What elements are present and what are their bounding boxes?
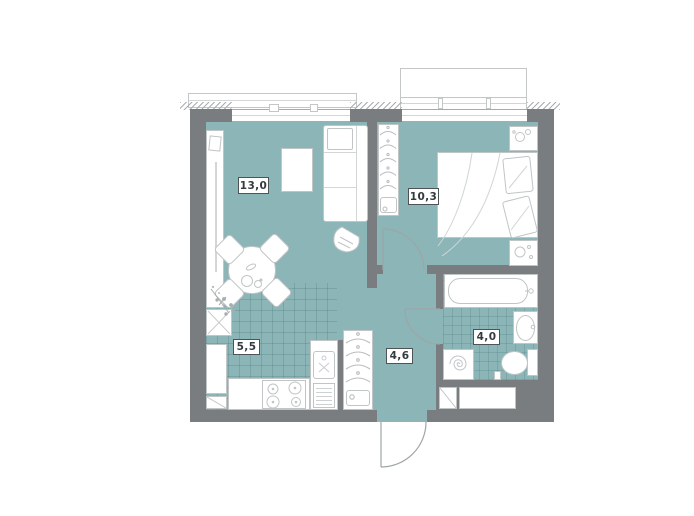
tv-frame	[208, 135, 222, 151]
window-frame-tick	[310, 104, 318, 112]
outer-wall-top	[527, 109, 554, 122]
balcony	[400, 68, 527, 98]
closet-drawer	[380, 197, 397, 213]
window-sill-line	[189, 100, 356, 101]
washbasin-bowl	[516, 315, 535, 341]
hob-unit	[206, 309, 232, 336]
hallway-area-value: 4,6	[390, 350, 410, 362]
sofa-cushion-line	[324, 187, 357, 188]
nightstand	[509, 126, 538, 151]
entrance-door	[381, 422, 426, 467]
outer-wall-bottom	[427, 410, 436, 422]
tv-line	[215, 162, 217, 272]
outer-wall-bottom	[190, 410, 377, 422]
sofa-backrest-line	[356, 126, 357, 221]
window-frame-tick	[269, 104, 279, 112]
room-label-bedroom: 10,3	[408, 188, 439, 205]
balcony-rail-tick	[438, 98, 443, 109]
toilet-tank	[527, 349, 538, 376]
nightstand	[509, 240, 538, 266]
kitchen-area-value: 5,5	[237, 341, 257, 353]
living-area-value: 13,0	[240, 180, 268, 192]
room-label-kitchen: 5,5	[233, 339, 260, 355]
washing-machine	[443, 349, 474, 380]
room-label-bathroom: 4,0	[473, 329, 500, 345]
vent-shaft	[439, 387, 457, 409]
wall-living-bedroom	[367, 122, 377, 288]
wall-hallway-bathroom	[436, 344, 443, 382]
refrigerator	[206, 344, 227, 394]
outer-wall-right	[538, 109, 554, 422]
kitchen-sink	[313, 351, 335, 379]
bedroom-area-value: 10,3	[410, 191, 438, 203]
wall-bedroom-hallway	[367, 265, 383, 274]
wall-bedroom-bathroom	[427, 265, 538, 274]
room-label-hallway: 4,6	[386, 348, 413, 364]
pillow	[502, 156, 534, 195]
coffee-table	[281, 148, 313, 192]
sofa-cushion	[327, 128, 353, 150]
toilet-bowl	[501, 351, 528, 375]
corner-cabinet	[206, 396, 227, 409]
wall-hallway-bathroom	[436, 273, 443, 309]
wardrobe-shoe-box	[346, 390, 370, 406]
drainboard	[313, 383, 335, 408]
balcony-rail-line	[401, 103, 526, 104]
bathroom-area-value: 4,0	[477, 331, 497, 343]
vent-shaft	[459, 387, 516, 409]
window-living-mid	[232, 115, 350, 116]
floor-plan: 13,0 10,3 5,5 4,6 4,0	[0, 0, 694, 516]
entrance-threshold	[377, 410, 427, 422]
outer-wall-top	[206, 109, 232, 122]
bathtub-basin	[448, 278, 528, 304]
outer-wall-top	[350, 109, 402, 122]
sofa-cushion-line	[324, 152, 357, 153]
room-label-living: 13,0	[238, 177, 269, 194]
stove	[262, 380, 306, 409]
balcony-rail-tick	[486, 98, 491, 109]
window-bedroom-mid	[402, 115, 527, 116]
outer-wall-left	[190, 109, 206, 422]
toilet-paper-holder	[494, 371, 501, 380]
